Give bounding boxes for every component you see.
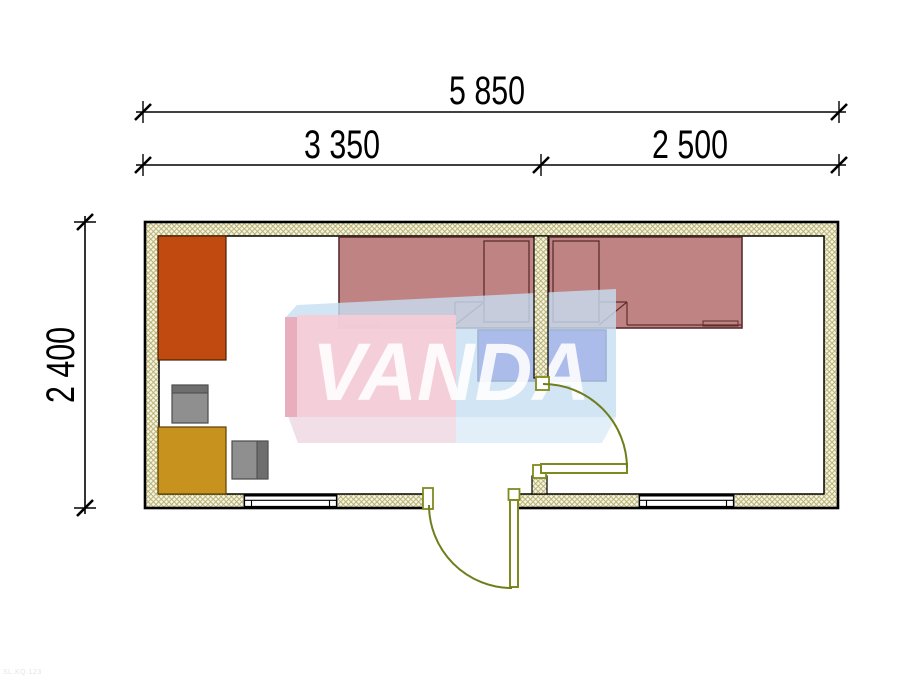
entrance-door (423, 488, 520, 588)
watermark-pink-side (285, 317, 297, 417)
corner-code-text: SL.KQ.123 (3, 669, 42, 676)
floor-plan-drawing: 5 850 3 350 2 500 2 400 (0, 0, 924, 700)
door-swing-arc (429, 505, 512, 588)
wardrobe (158, 236, 226, 360)
door-leaf (510, 500, 518, 587)
floor-plan-page: 5 850 3 350 2 500 2 400 (0, 0, 924, 700)
dimension-sections: 3 350 2 500 (135, 123, 847, 176)
door-gap (430, 490, 511, 511)
window-body (638, 496, 735, 507)
window-right (638, 495, 735, 507)
door-leaf (541, 464, 627, 473)
dim-label-overall: 5 850 (449, 69, 525, 113)
watermark: VANDA (285, 289, 616, 443)
dim-label-depth: 2 400 (39, 327, 83, 403)
door-hinge (509, 489, 520, 500)
chair-backrest (172, 385, 208, 393)
dimension-depth: 2 400 (39, 214, 96, 516)
door-jamb (423, 488, 433, 509)
chair-backrest (257, 441, 268, 479)
partition (534, 236, 548, 378)
dim-label-right-section: 2 500 (652, 123, 728, 167)
chair-2 (232, 441, 268, 479)
dim-label-left-section: 3 350 (304, 123, 380, 167)
chair-1 (172, 385, 208, 423)
dimension-overall-width: 5 850 (135, 69, 847, 123)
window-body (243, 496, 338, 507)
watermark-pink-bottom (289, 417, 456, 443)
window-left (243, 495, 338, 507)
table (158, 427, 226, 494)
